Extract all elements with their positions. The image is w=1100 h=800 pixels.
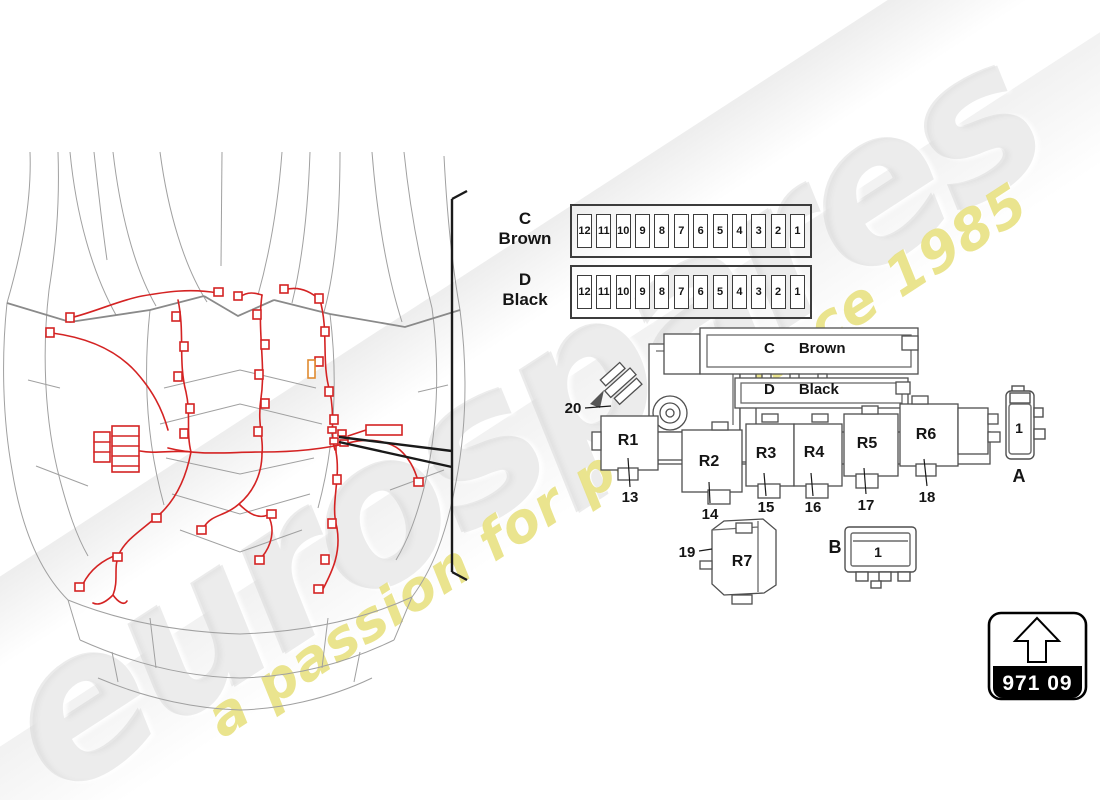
fuse-cell: 11: [596, 275, 611, 309]
fusebox-row-c-letter: C: [764, 340, 775, 357]
fuse-cell: 5: [713, 275, 728, 309]
fuse-cell: 9: [635, 214, 650, 248]
fuse-cell: 7: [674, 275, 689, 309]
relay-label-r6: R6: [906, 426, 946, 444]
diagram-canvas: [0, 0, 1100, 800]
relay-label-r4: R4: [794, 444, 834, 462]
fuse-cell: 2: [771, 275, 786, 309]
fuse-panel-d-letter: D: [486, 270, 564, 290]
orange-connector: [308, 360, 315, 378]
relay-label-r3: R3: [746, 445, 786, 463]
fusebox-row-d-color: Black: [799, 381, 839, 398]
fuse-cell: 10: [616, 214, 631, 248]
callout-17[interactable]: 17: [851, 497, 881, 514]
fuse-cell: 7: [674, 214, 689, 248]
fuse-panel-c-letter: C: [486, 209, 564, 229]
callout-15[interactable]: 15: [751, 499, 781, 516]
callout-16[interactable]: 16: [798, 499, 828, 516]
fuse-strip-c: 12 11 10 9 8 7 6 5 4 3 2 1: [570, 204, 812, 258]
part-code[interactable]: 971 09: [993, 672, 1082, 696]
fusebox-row-c-label: C Brown: [764, 340, 846, 357]
callout-19[interactable]: 19: [672, 544, 702, 561]
fuse-cell: 12: [577, 275, 592, 309]
callout-20[interactable]: 20: [558, 400, 588, 417]
fuse-cell: 1: [790, 275, 805, 309]
fuse-cell: 5: [713, 214, 728, 248]
fuse-cell: 1: [790, 214, 805, 248]
fusebox-row-d-label: D Black: [764, 381, 839, 398]
connector-b-slot: 1: [863, 544, 893, 560]
fuse-panel-c-label: C Brown: [486, 209, 564, 249]
callout-18[interactable]: 18: [912, 489, 942, 506]
connector-b-label: B: [820, 537, 850, 558]
relay-label-r7: R7: [722, 553, 762, 571]
fuse-cell: 4: [732, 275, 747, 309]
fuse-cell: 6: [693, 214, 708, 248]
fuse-panel-c-color: Brown: [486, 229, 564, 249]
callout-14[interactable]: 14: [695, 506, 725, 523]
fuse-strip-d: 12 11 10 9 8 7 6 5 4 3 2 1: [570, 265, 812, 319]
fuse-panel-d-label: D Black: [486, 270, 564, 310]
fuse-cell: 12: [577, 214, 592, 248]
fuse-cell: 3: [751, 275, 766, 309]
relay-label-r2: R2: [689, 453, 729, 471]
fusebox-row-c-color: Brown: [799, 340, 846, 357]
relay-label-r1: R1: [608, 432, 648, 450]
wiring-harness-drawing: [46, 285, 423, 604]
fuse-cell: 8: [654, 275, 669, 309]
fuse-cell: 2: [771, 214, 786, 248]
fuse-cell: 8: [654, 214, 669, 248]
connector-a-label: A: [1004, 466, 1034, 487]
fuse-cell: 6: [693, 275, 708, 309]
fusebox-row-d-letter: D: [764, 381, 775, 398]
fuse-cell: 9: [635, 275, 650, 309]
connector-a-slot: 1: [1004, 420, 1034, 436]
fuse-panel-d-color: Black: [486, 290, 564, 310]
fuse-cell: 11: [596, 214, 611, 248]
parts-diagram-page: eurospares a passion for parts since 198…: [0, 0, 1100, 800]
relay-label-r5: R5: [847, 435, 887, 453]
fuse-cell: 10: [616, 275, 631, 309]
fuse-cell: 3: [751, 214, 766, 248]
callout-13[interactable]: 13: [615, 489, 645, 506]
fuse-cell: 4: [732, 214, 747, 248]
